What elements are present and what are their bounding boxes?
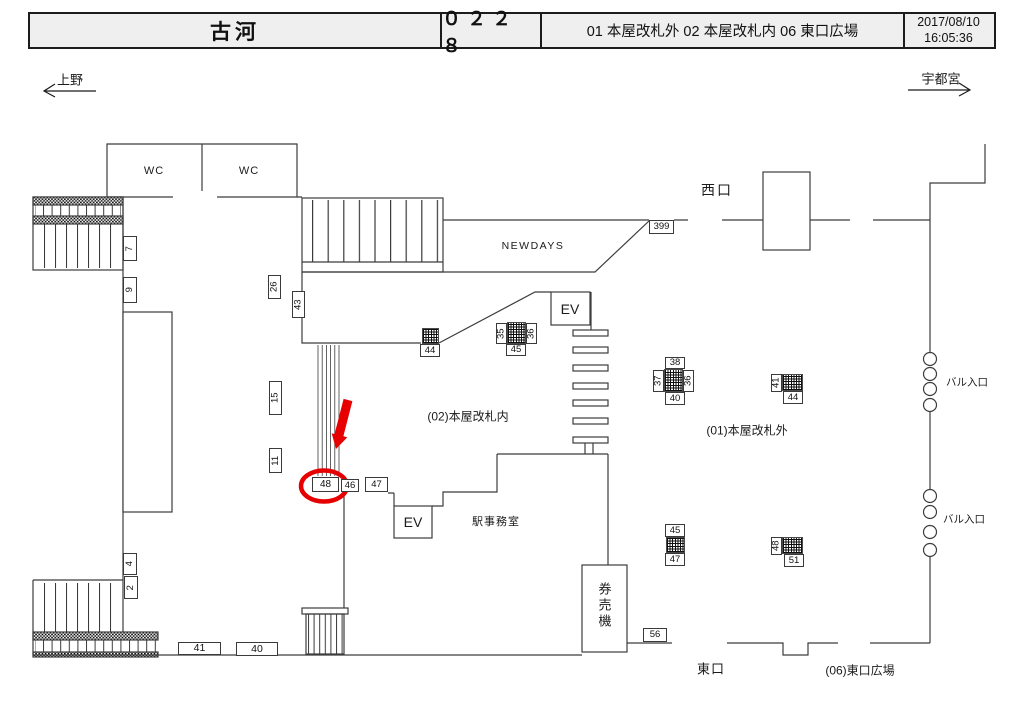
map-tag-label: 41 <box>772 378 782 389</box>
map-tag-51[interactable]: 51 <box>784 554 804 567</box>
map-tag-label: 47 <box>371 480 382 490</box>
map-tag-label: 40 <box>251 644 263 655</box>
label-zone-inside-gates: (02)本屋改札内 <box>427 408 508 425</box>
map-tag-label: 45 <box>670 526 681 536</box>
map-tag-label: 7 <box>125 246 135 251</box>
map-tag-label: 26 <box>270 282 280 293</box>
ticket-gate-hatch <box>664 369 683 392</box>
label-zone-outside-gates: (01)本屋改札外 <box>706 422 787 439</box>
map-tag-9[interactable]: 9 <box>123 277 137 303</box>
map-tag-26[interactable]: 26 <box>268 275 281 299</box>
map-tag-41[interactable]: 41 <box>178 642 221 655</box>
map-tag-48[interactable]: 48 <box>312 477 339 492</box>
map-tag-label: 43 <box>294 299 304 310</box>
map-tag-46[interactable]: 46 <box>341 479 359 492</box>
map-tag-35[interactable]: 35 <box>496 323 507 344</box>
label-wc-right: WC <box>239 165 259 177</box>
map-tag-38[interactable]: 38 <box>665 357 685 369</box>
map-tag-41[interactable]: 41 <box>771 374 782 392</box>
map-tag-40[interactable]: 40 <box>665 392 685 405</box>
map-tag-36[interactable]: 36 <box>526 323 537 344</box>
map-tag-45[interactable]: 45 <box>506 344 526 356</box>
map-tag-43[interactable]: 43 <box>292 291 305 318</box>
map-tag-44[interactable]: 44 <box>420 344 440 357</box>
map-tag-15[interactable]: 15 <box>269 381 282 415</box>
floorplan-canvas <box>0 0 1024 724</box>
map-tag-label: 44 <box>788 393 799 403</box>
map-tag-label: 15 <box>271 393 281 404</box>
label-zone-east-plaza: (06)東口広場 <box>825 662 894 679</box>
map-tag-label: 48 <box>320 480 331 490</box>
map-tag-399[interactable]: 399 <box>649 220 674 234</box>
label-office: 駅事務室 <box>472 513 520 529</box>
map-tag-4[interactable]: 4 <box>123 553 137 575</box>
map-tag-label: 44 <box>425 346 436 356</box>
map-tag-label: 37 <box>654 376 664 387</box>
map-tag-56[interactable]: 56 <box>643 628 667 642</box>
map-tag-label: 47 <box>670 555 681 565</box>
label-newdays: NEWDAYS <box>502 240 565 252</box>
map-tag-label: 46 <box>345 481 356 491</box>
map-tag-47[interactable]: 47 <box>665 553 685 566</box>
label-east-exit: 東口 <box>697 659 725 678</box>
map-tag-36[interactable]: 36 <box>683 370 694 392</box>
map-tag-label: 56 <box>650 630 661 640</box>
label-bar-entrance-2: バル入口 <box>943 512 985 527</box>
map-tag-label: 4 <box>125 561 135 566</box>
ticket-gate-hatch <box>782 537 803 554</box>
map-tag-label: 38 <box>670 358 681 368</box>
map-tag-2[interactable]: 2 <box>124 576 138 599</box>
ticket-gate-hatch <box>507 322 526 344</box>
map-tag-label: 40 <box>670 394 681 404</box>
map-tag-label: 2 <box>126 585 136 590</box>
map-tag-40[interactable]: 40 <box>236 642 278 656</box>
label-wc-left: WC <box>144 165 164 177</box>
label-bar-entrance-1: バル入口 <box>946 375 988 390</box>
map-tag-11[interactable]: 11 <box>269 448 282 473</box>
map-tag-7[interactable]: 7 <box>123 236 137 261</box>
label-ev-upper: EV <box>561 301 580 317</box>
map-tag-37[interactable]: 37 <box>653 370 664 392</box>
ticket-gate-hatch <box>666 537 685 553</box>
map-tag-44[interactable]: 44 <box>783 391 803 404</box>
map-tag-label: 41 <box>194 643 206 654</box>
map-tag-label: 36 <box>684 376 694 387</box>
map-tag-label: 48 <box>772 541 782 552</box>
walls <box>33 83 985 657</box>
ticket-gate-hatch <box>782 374 803 391</box>
map-tag-label: 9 <box>125 287 135 292</box>
map-tag-label: 35 <box>497 328 507 339</box>
map-tag-45[interactable]: 45 <box>665 524 685 537</box>
map-tag-label: 51 <box>789 556 800 566</box>
map-tag-label: 11 <box>271 456 281 466</box>
map-tag-48[interactable]: 48 <box>771 537 782 555</box>
ticket-gate-hatch <box>422 328 439 344</box>
map-tag-label: 45 <box>511 345 522 355</box>
map-tag-label: 399 <box>654 222 670 232</box>
label-ticket-machines: 券売機 <box>595 582 614 630</box>
label-west-exit: 西口 <box>701 180 733 200</box>
map-tag-47[interactable]: 47 <box>365 477 388 492</box>
map-tag-label: 36 <box>527 328 537 339</box>
label-ev-lower: EV <box>404 514 423 530</box>
label-direction-ueno: 上野 <box>57 70 83 89</box>
label-direction-utsunomiya: 宇都宮 <box>921 69 960 88</box>
